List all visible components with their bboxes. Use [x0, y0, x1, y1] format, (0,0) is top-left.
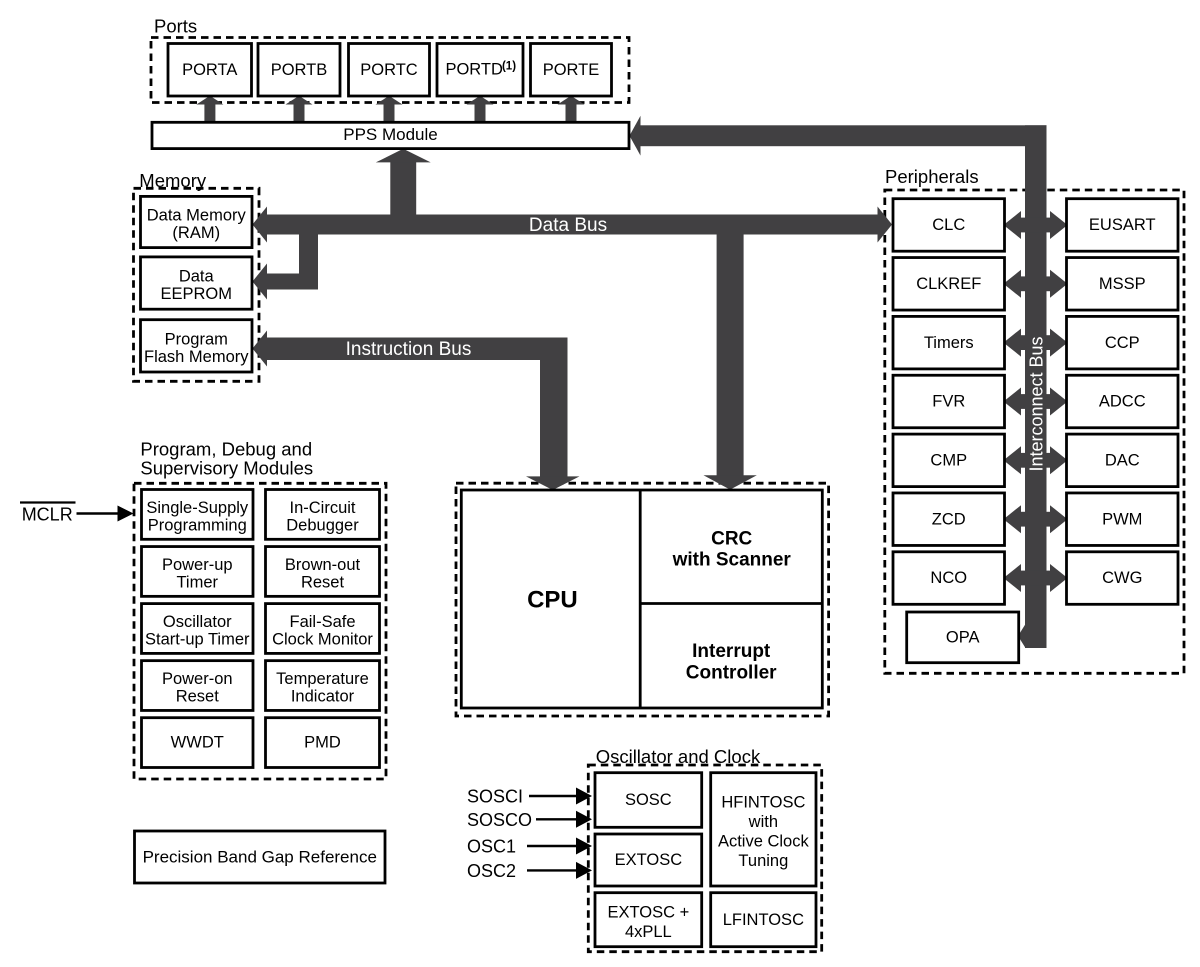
- svg-text:Interrupt: Interrupt: [692, 641, 771, 662]
- svg-text:with Scanner: with Scanner: [672, 550, 792, 571]
- svg-text:Supervisory Modules: Supervisory Modules: [140, 458, 313, 479]
- svg-text:Tuning: Tuning: [738, 852, 788, 870]
- svg-text:PPS Module: PPS Module: [343, 125, 438, 144]
- svg-text:MSSP: MSSP: [1099, 275, 1146, 293]
- svg-text:ZCD: ZCD: [932, 510, 966, 528]
- svg-text:FVR: FVR: [932, 393, 965, 411]
- svg-text:Single-Supply: Single-Supply: [146, 499, 249, 517]
- svg-text:OSC2: OSC2: [467, 861, 516, 881]
- svg-text:Start-up Timer: Start-up Timer: [145, 631, 250, 649]
- svg-text:LFINTOSC: LFINTOSC: [723, 911, 804, 929]
- svg-text:CPU: CPU: [527, 586, 578, 613]
- svg-text:Memory: Memory: [139, 170, 207, 191]
- svg-text:CCP: CCP: [1105, 334, 1140, 352]
- svg-text:Brown-out: Brown-out: [285, 556, 361, 574]
- svg-text:Timers: Timers: [924, 334, 974, 352]
- svg-text:Indicator: Indicator: [291, 688, 355, 706]
- svg-text:PORTD: PORTD: [445, 61, 503, 79]
- svg-text:SOSC: SOSC: [625, 791, 672, 809]
- svg-text:PMD: PMD: [304, 734, 341, 752]
- svg-text:WWDT: WWDT: [171, 734, 224, 752]
- svg-text:Fail-Safe: Fail-Safe: [289, 613, 355, 631]
- svg-text:Debugger: Debugger: [286, 517, 359, 535]
- svg-text:In-Circuit: In-Circuit: [289, 499, 355, 517]
- svg-text:Programming: Programming: [148, 517, 247, 535]
- svg-text:SOSCO: SOSCO: [467, 810, 532, 830]
- svg-text:OPA: OPA: [946, 629, 980, 647]
- svg-text:Instruction Bus: Instruction Bus: [346, 339, 472, 360]
- svg-text:Reset: Reset: [301, 574, 345, 592]
- svg-text:EXTOSC +: EXTOSC +: [607, 903, 689, 921]
- svg-text:Active Clock: Active Clock: [718, 833, 810, 851]
- svg-text:with: with: [748, 813, 778, 831]
- svg-text:DAC: DAC: [1105, 452, 1140, 470]
- svg-text:EUSART: EUSART: [1089, 216, 1156, 234]
- svg-text:Controller: Controller: [686, 663, 777, 684]
- svg-text:PORTE: PORTE: [543, 61, 600, 79]
- svg-text:Flash Memory: Flash Memory: [144, 348, 249, 366]
- svg-text:Interconnect Bus: Interconnect Bus: [1027, 336, 1047, 471]
- svg-text:(1): (1): [502, 61, 516, 73]
- svg-text:NCO: NCO: [930, 569, 967, 587]
- svg-text:PORTC: PORTC: [360, 61, 418, 79]
- svg-text:EXTOSC: EXTOSC: [615, 851, 683, 869]
- svg-text:PORTB: PORTB: [271, 61, 328, 79]
- svg-text:Oscillator: Oscillator: [163, 613, 232, 631]
- svg-text:4xPLL: 4xPLL: [625, 923, 672, 941]
- svg-text:MCLR: MCLR: [22, 505, 73, 525]
- svg-text:Data: Data: [179, 268, 215, 286]
- svg-text:Power-up: Power-up: [162, 556, 233, 574]
- svg-text:SOSCI: SOSCI: [467, 787, 523, 807]
- svg-text:Program, Debug and: Program, Debug and: [140, 439, 312, 460]
- svg-text:Timer: Timer: [176, 574, 218, 592]
- svg-text:Program: Program: [165, 331, 228, 349]
- svg-text:Oscillator and Clock: Oscillator and Clock: [596, 746, 761, 767]
- svg-text:CRC: CRC: [711, 529, 752, 550]
- svg-text:CLKREF: CLKREF: [916, 275, 981, 293]
- svg-text:Reset: Reset: [176, 688, 220, 706]
- svg-text:Data Bus: Data Bus: [529, 215, 607, 236]
- svg-text:PORTA: PORTA: [182, 61, 237, 79]
- svg-text:CLC: CLC: [932, 216, 965, 234]
- svg-text:Power-on: Power-on: [162, 670, 233, 688]
- svg-text:Peripherals: Peripherals: [885, 166, 979, 187]
- svg-text:Temperature: Temperature: [276, 670, 369, 688]
- svg-text:Data Memory: Data Memory: [147, 207, 247, 225]
- svg-text:ADCC: ADCC: [1099, 393, 1146, 411]
- svg-text:CMP: CMP: [930, 452, 967, 470]
- svg-text:Precision Band Gap Reference: Precision Band Gap Reference: [143, 847, 377, 866]
- svg-text:Ports: Ports: [154, 16, 197, 37]
- svg-text:OSC1: OSC1: [467, 837, 516, 857]
- svg-text:Clock Monitor: Clock Monitor: [272, 631, 373, 649]
- svg-text:CWG: CWG: [1102, 569, 1142, 587]
- svg-text:PWM: PWM: [1102, 510, 1142, 528]
- svg-text:HFINTOSC: HFINTOSC: [721, 794, 805, 812]
- svg-text:EEPROM: EEPROM: [160, 285, 232, 303]
- svg-text:(RAM): (RAM): [172, 224, 220, 242]
